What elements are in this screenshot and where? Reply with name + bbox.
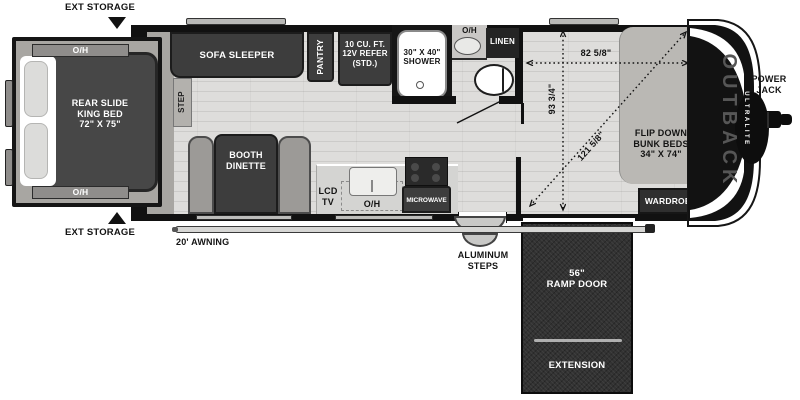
flip-down-bunks-panel xyxy=(619,27,701,184)
wardrobe-label: WARDROBE xyxy=(637,196,705,206)
toilet-seat-line xyxy=(502,68,504,92)
shower-label: 30" X 40" SHOWER xyxy=(396,48,448,67)
pantry-label: PANTRY xyxy=(314,35,326,79)
awning-bar xyxy=(175,226,652,233)
slide-rail-1 xyxy=(5,80,13,127)
sofa-sleeper-label: SOFA SLEEPER xyxy=(170,50,304,61)
bedroom-oh-top-label: O/H xyxy=(32,45,129,55)
ramp-door-label: 56" RAMP DOOR xyxy=(522,268,632,290)
lcd-tv-label: LCD TV xyxy=(314,186,342,207)
ramp-divider-line xyxy=(534,339,622,342)
bottom-window-strip-1 xyxy=(196,215,292,220)
kitchen-faucet xyxy=(371,180,373,192)
awning-label: 20' AWNING xyxy=(176,237,256,248)
burner-1 xyxy=(411,163,419,171)
dim-width-label: 82 5/8" xyxy=(566,48,626,59)
ext-storage-bottom-label: EXT STORAGE xyxy=(52,227,148,238)
garage-wall-stub xyxy=(516,157,521,214)
bedroom-oh-bottom-label: O/H xyxy=(32,187,129,197)
dinette-bench-left xyxy=(188,136,214,214)
range-cooktop xyxy=(405,157,448,186)
shower-drain-icon xyxy=(416,81,424,89)
bath-oh-label: O/H xyxy=(452,26,487,35)
aluminum-step-2 xyxy=(462,233,498,247)
linen-label: LINEN xyxy=(485,37,520,46)
bath-wall-bottom-right xyxy=(499,96,523,104)
brand-outback-label: OUTBACK xyxy=(717,61,739,181)
awning-end-cap-right xyxy=(645,224,655,233)
step-label: STEP xyxy=(176,84,188,120)
aluminum-steps-label: ALUMINUM STEPS xyxy=(438,250,528,271)
toilet xyxy=(474,64,514,96)
garage-wall-upper xyxy=(521,103,524,124)
burner-4 xyxy=(432,174,440,182)
kitchen-sink xyxy=(349,167,397,196)
power-jack-arm xyxy=(763,111,781,128)
bottom-window-strip-2 xyxy=(335,215,433,220)
king-bed-label: REAR SLIDE KING BED 72" X 75" xyxy=(52,98,148,130)
roof-rail-left xyxy=(186,18,286,25)
burner-3 xyxy=(411,174,419,182)
extension-label: EXTENSION xyxy=(522,360,632,371)
ext-storage-top-label: EXT STORAGE xyxy=(52,2,148,13)
flip-down-bunks-label: FLIP DOWN BUNK BEDS 34" X 74" xyxy=(622,128,700,160)
roof-rail-right xyxy=(549,18,619,25)
refrigerator-label: 10 CU. FT. 12V REFER (STD.) xyxy=(336,40,394,68)
dim-height-label: 93 3/4" xyxy=(546,77,558,121)
dinette-bench-right xyxy=(278,136,311,214)
ext-storage-arrow-down-icon xyxy=(108,17,126,29)
microwave-label: MICROWAVE xyxy=(401,197,452,205)
bath-wall-bottom-left xyxy=(392,96,456,104)
booth-dinette xyxy=(214,134,278,214)
slide-rail-2 xyxy=(5,149,13,186)
bath-sink xyxy=(454,37,481,55)
power-jack-coupler xyxy=(779,114,792,125)
awning-end-cap-left xyxy=(172,227,178,232)
booth-dinette-label: BOOTH DINETTE xyxy=(212,150,280,171)
pillow-top xyxy=(24,61,48,117)
pillow-bottom xyxy=(24,123,48,179)
power-jack-label: POWER JACK xyxy=(746,74,792,95)
ext-storage-arrow-up-icon xyxy=(108,212,126,224)
kitchen-oh-label: O/H xyxy=(354,199,390,210)
floorplan-root: O/H O/H REAR SLIDE KING BED 72" X 75" EX… xyxy=(0,0,800,400)
burner-2 xyxy=(432,163,440,171)
